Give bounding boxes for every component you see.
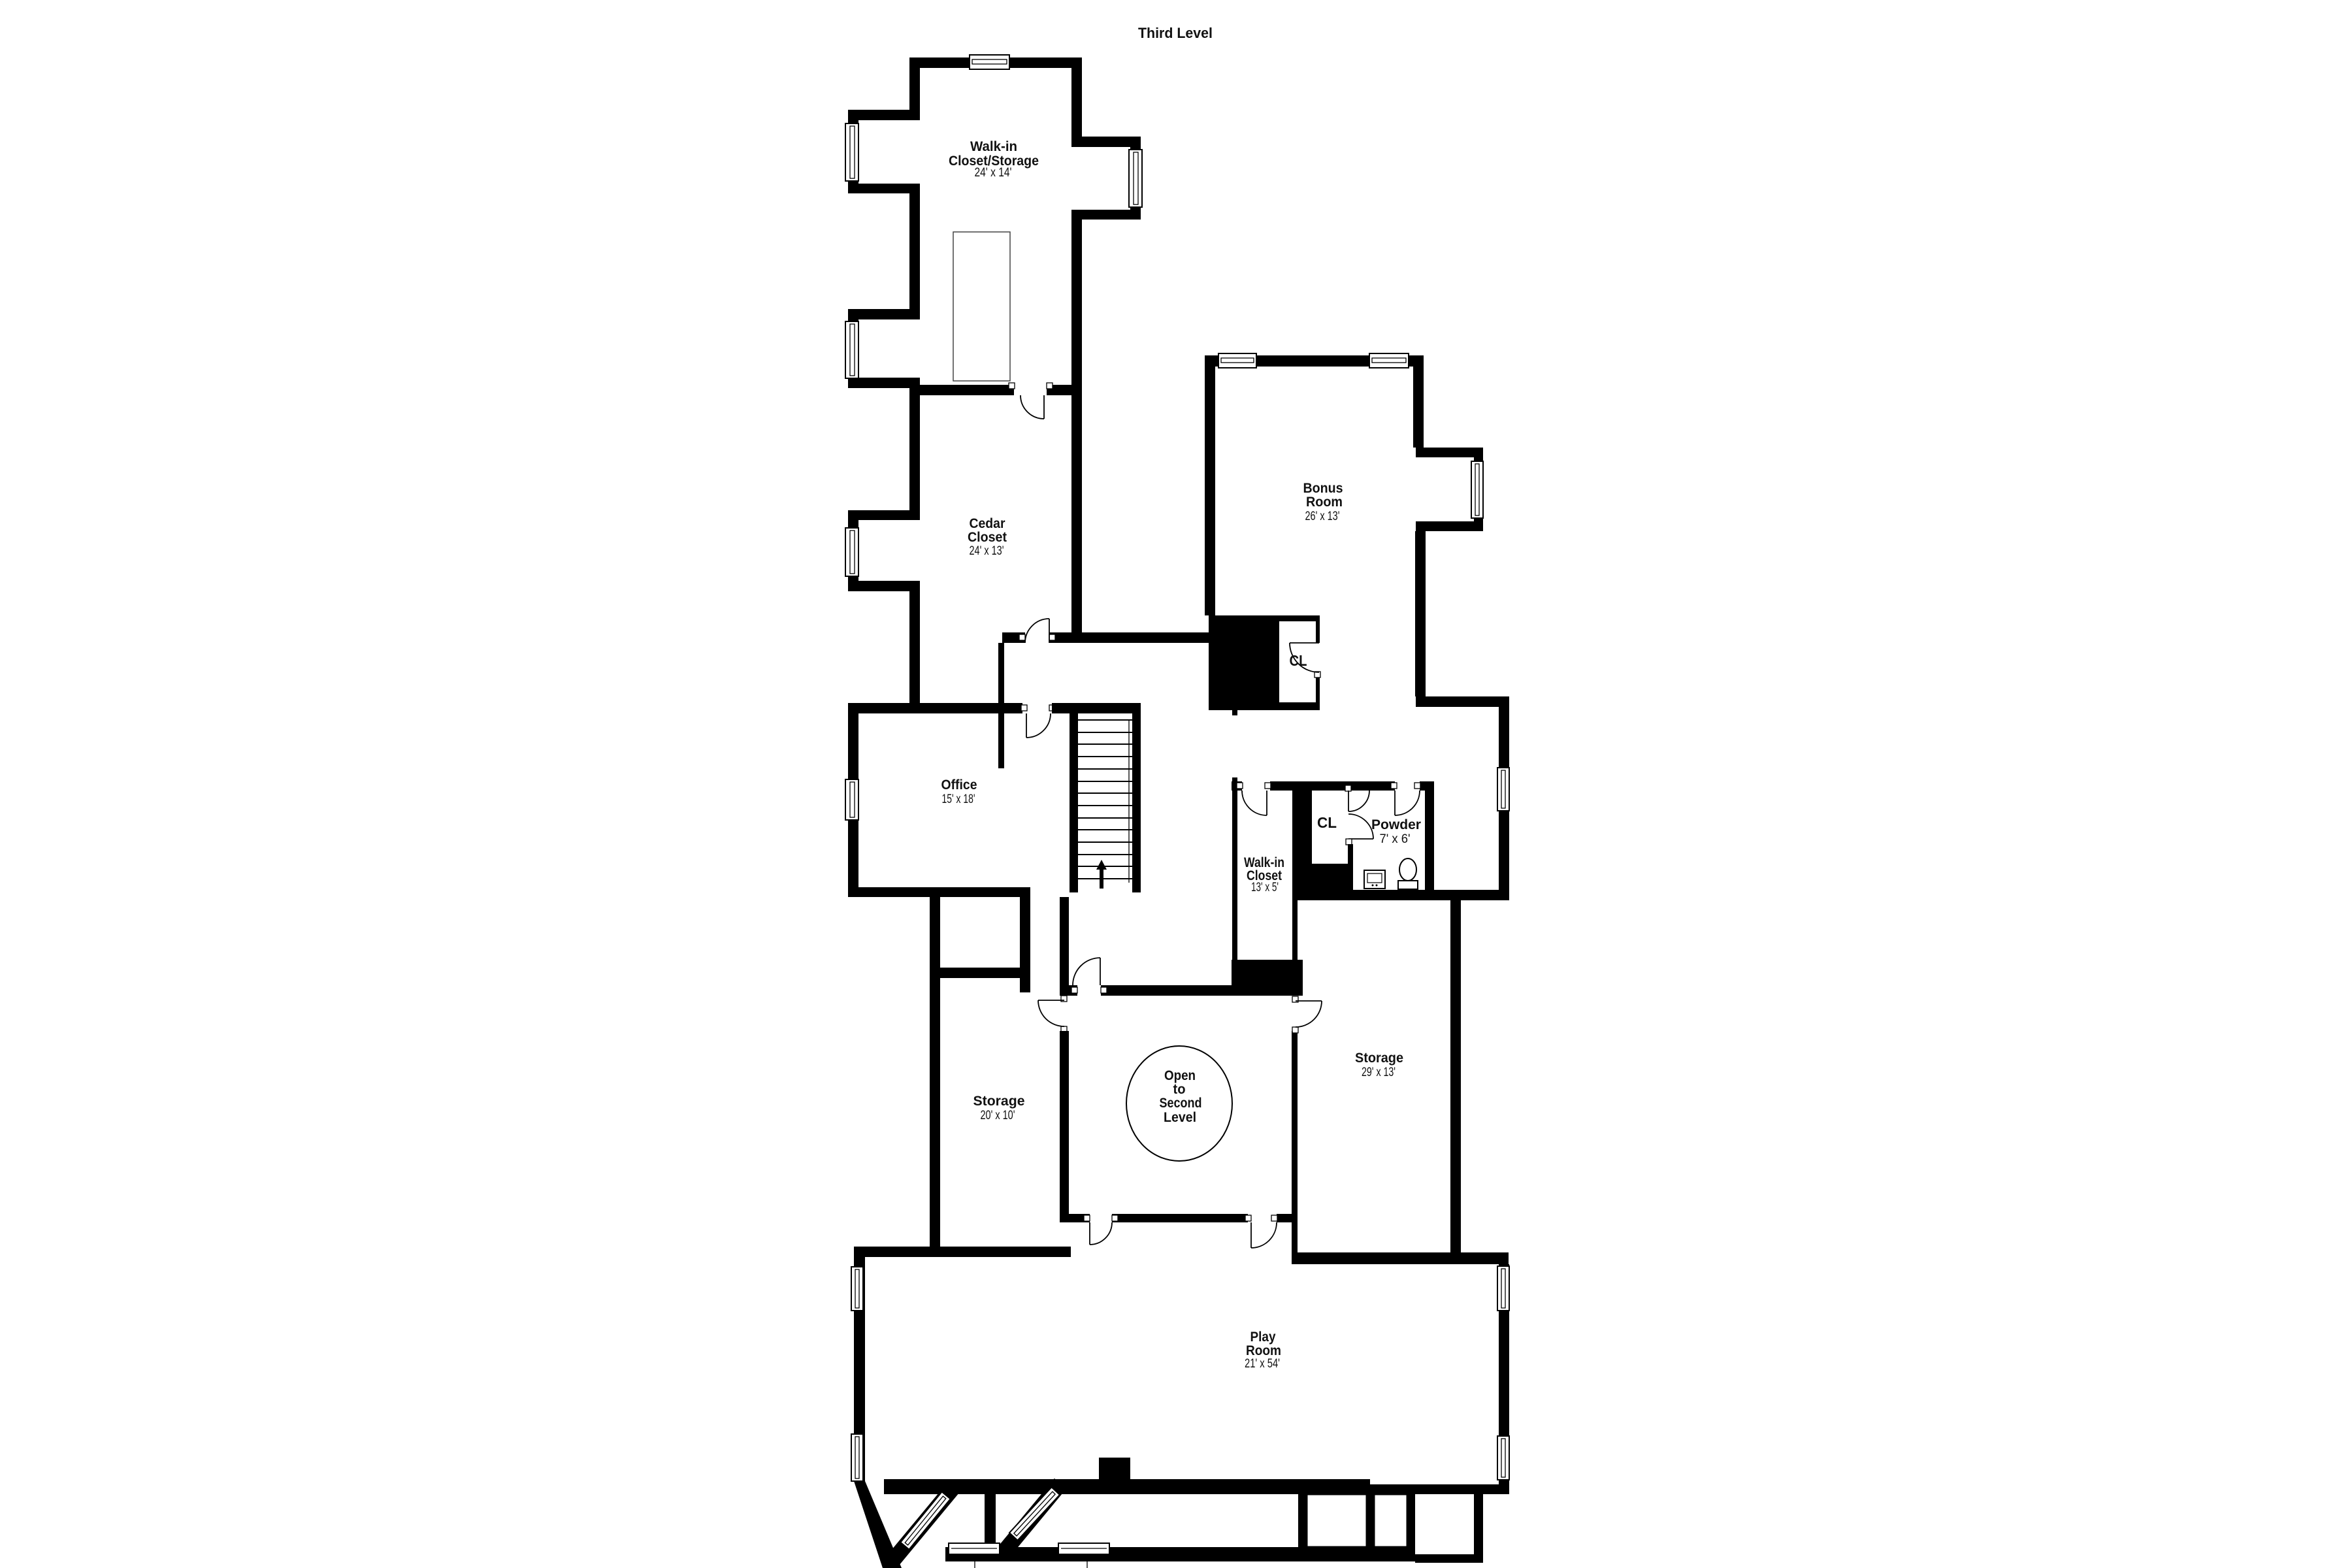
svg-text:Second: Second [1160,1096,1202,1111]
svg-text:CL: CL [1290,652,1307,669]
svg-text:Storage: Storage [973,1094,1025,1109]
svg-text:15' x 18': 15' x 18' [942,792,975,806]
svg-text:26' x 13': 26' x 13' [1305,510,1340,523]
svg-text:21' x 54': 21' x 54' [1245,1357,1280,1371]
svg-text:Play: Play [1250,1330,1276,1345]
svg-text:13' x 5': 13' x 5' [1251,881,1279,894]
svg-text:to: to [1173,1082,1186,1097]
svg-text:CL: CL [1317,814,1337,831]
svg-text:20' x 10': 20' x 10' [981,1109,1015,1122]
svg-text:Bonus: Bonus [1303,481,1343,496]
svg-text:Room: Room [1306,495,1343,510]
svg-text:24' x 14': 24' x 14' [975,166,1012,180]
svg-text:Office: Office [941,777,977,792]
svg-text:Third Level: Third Level [1138,25,1213,41]
svg-text:24' x 13': 24' x 13' [970,544,1004,558]
svg-text:Closet: Closet [968,530,1007,545]
svg-text:Storage: Storage [1355,1051,1403,1066]
svg-text:Powder: Powder [1371,817,1421,832]
svg-text:Level: Level [1164,1110,1196,1125]
svg-text:29' x 13': 29' x 13' [1362,1066,1396,1079]
svg-text:Cedar: Cedar [970,516,1005,531]
svg-text:7' x 6': 7' x 6' [1380,832,1411,846]
svg-text:Room: Room [1246,1343,1281,1358]
svg-text:Walk-in: Walk-in [970,139,1017,154]
svg-text:Open: Open [1164,1068,1196,1083]
